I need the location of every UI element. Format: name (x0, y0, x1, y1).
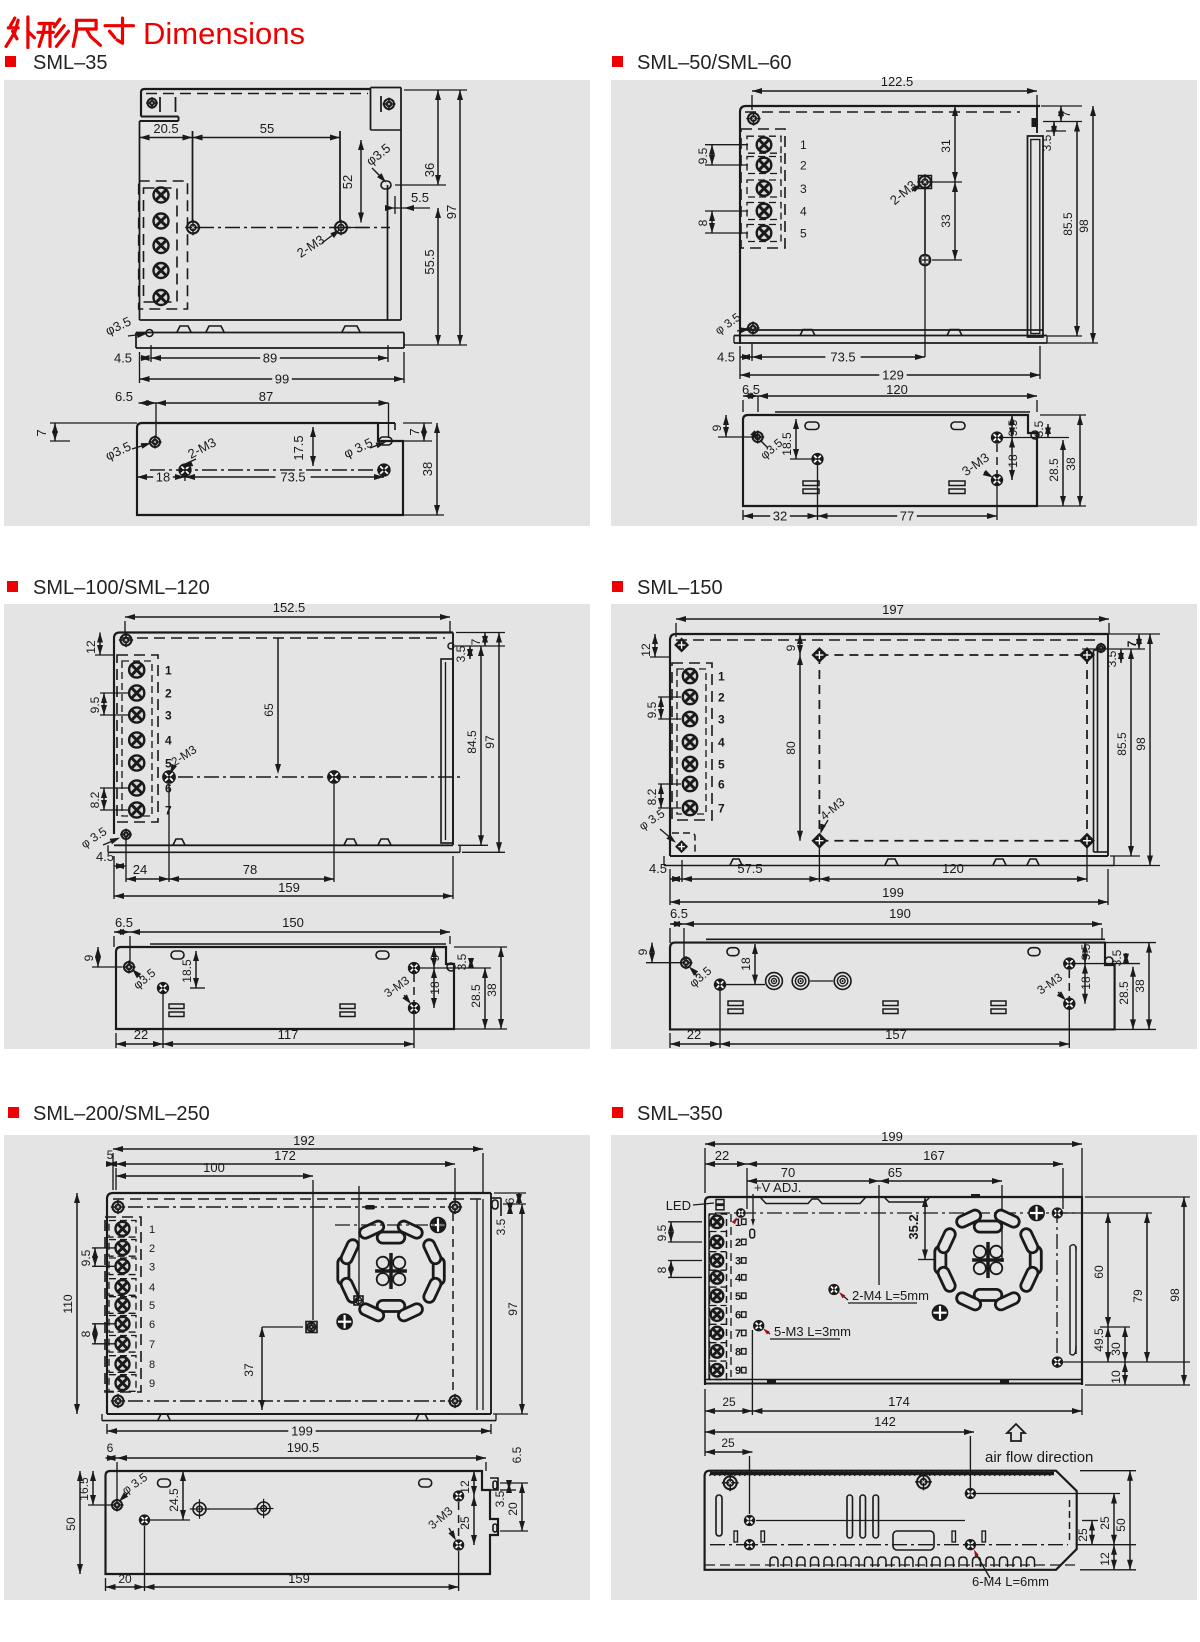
svg-text:33: 33 (939, 214, 953, 228)
svg-text:9: 9 (784, 644, 798, 651)
svg-text:SML–100/SML–120: SML–100/SML–120 (33, 577, 210, 599)
svg-text:3.5: 3.5 (1110, 949, 1124, 966)
svg-text:28.5: 28.5 (1047, 458, 1061, 482)
svg-text:6.5: 6.5 (670, 906, 688, 921)
svg-text:100: 100 (203, 1160, 225, 1175)
svg-text:5: 5 (149, 1300, 155, 1312)
svg-text:9.5: 9.5 (655, 1224, 669, 1241)
svg-text:6: 6 (107, 1441, 114, 1455)
svg-text:9: 9 (428, 954, 442, 961)
svg-text:1: 1 (149, 1224, 155, 1236)
svg-text:18: 18 (1079, 976, 1093, 990)
svg-text:17.5: 17.5 (291, 435, 306, 460)
svg-text:22: 22 (134, 1027, 148, 1042)
svg-text:197: 197 (882, 602, 904, 617)
svg-text:117: 117 (278, 1027, 299, 1042)
svg-text:7: 7 (469, 638, 483, 645)
svg-text:9: 9 (735, 1365, 741, 1377)
svg-text:9: 9 (710, 424, 724, 431)
svg-text:8.2: 8.2 (88, 791, 102, 808)
svg-text:6: 6 (149, 1319, 155, 1331)
svg-text:3.5: 3.5 (1032, 420, 1046, 437)
svg-text:55: 55 (260, 121, 274, 136)
svg-text:5: 5 (735, 1291, 741, 1303)
svg-text:25: 25 (722, 1395, 736, 1409)
svg-text:99: 99 (275, 371, 289, 386)
svg-text:18.5: 18.5 (180, 959, 194, 983)
svg-text:57.5: 57.5 (737, 861, 762, 876)
svg-text:3.5: 3.5 (1105, 650, 1119, 667)
svg-text:36: 36 (422, 163, 437, 177)
svg-text:12: 12 (639, 643, 653, 657)
svg-text:199: 199 (881, 1129, 903, 1144)
svg-text:1: 1 (165, 664, 172, 678)
svg-text:4.5: 4.5 (649, 861, 667, 876)
svg-text:2: 2 (800, 159, 807, 173)
svg-text:9: 9 (149, 1378, 155, 1390)
svg-text:85.5: 85.5 (1115, 732, 1129, 756)
svg-text:6: 6 (718, 778, 725, 792)
svg-text:28.5: 28.5 (1117, 981, 1131, 1005)
svg-text:2: 2 (165, 687, 172, 701)
svg-text:6.5: 6.5 (510, 1446, 524, 1463)
svg-text:6: 6 (735, 1310, 741, 1322)
svg-text:174: 174 (888, 1394, 910, 1409)
svg-text:157: 157 (885, 1027, 907, 1042)
svg-text:4.5: 4.5 (96, 849, 114, 864)
svg-text:3: 3 (149, 1261, 155, 1273)
svg-text:3: 3 (165, 709, 172, 723)
svg-text:6.5: 6.5 (742, 382, 760, 397)
svg-text:22: 22 (715, 1148, 729, 1163)
svg-text:31: 31 (939, 139, 953, 153)
svg-text:190: 190 (889, 906, 911, 921)
svg-text:85.5: 85.5 (1061, 212, 1075, 236)
svg-text:4: 4 (149, 1282, 155, 1294)
svg-text:2: 2 (735, 1237, 741, 1249)
svg-text:120: 120 (942, 861, 964, 876)
svg-text:98: 98 (1168, 1288, 1182, 1302)
svg-text:142: 142 (874, 1414, 896, 1429)
svg-text:4.5: 4.5 (114, 350, 132, 365)
svg-text:4: 4 (800, 205, 807, 219)
svg-text:24.5: 24.5 (167, 1488, 181, 1512)
svg-text:150: 150 (282, 915, 304, 930)
svg-text:9.5: 9.5 (79, 1249, 93, 1266)
svg-text:199: 199 (291, 1423, 313, 1438)
svg-text:8: 8 (149, 1359, 155, 1371)
svg-text:9: 9 (82, 954, 96, 961)
svg-text:+V ADJ.: +V ADJ. (754, 1180, 801, 1195)
svg-text:49.5: 49.5 (1092, 1328, 1106, 1352)
svg-text:77: 77 (900, 508, 914, 523)
svg-text:9.5: 9.5 (1006, 419, 1020, 436)
svg-text:25: 25 (1098, 1516, 1112, 1530)
svg-text:38: 38 (485, 983, 499, 997)
svg-text:7: 7 (1059, 110, 1073, 117)
svg-text:18: 18 (739, 957, 753, 971)
svg-text:50: 50 (64, 1517, 78, 1531)
svg-text:52: 52 (340, 175, 355, 189)
svg-text:18: 18 (156, 469, 170, 484)
svg-text:25: 25 (721, 1436, 735, 1450)
svg-text:30: 30 (1109, 1342, 1123, 1356)
svg-text:24: 24 (133, 862, 147, 877)
svg-text:20: 20 (506, 1502, 520, 1516)
svg-text:122.5: 122.5 (881, 74, 914, 89)
svg-text:7: 7 (735, 1328, 741, 1340)
svg-text:18: 18 (428, 981, 442, 995)
svg-text:9.5: 9.5 (696, 147, 710, 164)
svg-text:18: 18 (1006, 454, 1020, 468)
svg-text:5: 5 (107, 1148, 114, 1162)
svg-text:9: 9 (636, 948, 650, 955)
svg-text:12: 12 (84, 640, 98, 654)
svg-text:2-M4 L=5mm: 2-M4 L=5mm (852, 1288, 929, 1303)
svg-text:SML–35: SML–35 (33, 52, 108, 74)
svg-text:80: 80 (784, 741, 798, 755)
svg-text:65: 65 (888, 1165, 902, 1180)
svg-text:78: 78 (243, 862, 257, 877)
svg-text:97: 97 (483, 735, 497, 749)
svg-text:38: 38 (1064, 457, 1078, 471)
svg-text:98: 98 (1077, 219, 1091, 233)
svg-text:LED: LED (666, 1198, 691, 1213)
svg-text:9.5: 9.5 (1079, 943, 1093, 960)
svg-text:8: 8 (655, 1266, 669, 1273)
svg-text:2: 2 (718, 691, 725, 705)
svg-text:159: 159 (288, 1571, 310, 1586)
svg-text:50: 50 (1114, 1518, 1128, 1532)
svg-text:28.5: 28.5 (469, 984, 483, 1008)
svg-text:4.5: 4.5 (717, 349, 735, 364)
svg-text:4: 4 (165, 734, 172, 748)
svg-text:35.2: 35.2 (906, 1214, 921, 1239)
svg-text:73.5: 73.5 (830, 349, 855, 364)
svg-text:9.5: 9.5 (88, 696, 102, 713)
svg-text:7: 7 (149, 1339, 155, 1351)
svg-text:22: 22 (687, 1027, 701, 1042)
svg-text:60: 60 (1092, 1265, 1106, 1279)
svg-text:38: 38 (420, 462, 435, 476)
svg-text:152.5: 152.5 (273, 600, 306, 615)
svg-text:65: 65 (262, 703, 276, 717)
svg-text:Dimensions: Dimensions (143, 16, 305, 51)
svg-text:84.5: 84.5 (465, 730, 479, 754)
svg-text:79: 79 (1131, 1289, 1145, 1303)
svg-text:120: 120 (886, 382, 908, 397)
svg-text:8: 8 (79, 1330, 93, 1337)
svg-text:3: 3 (718, 713, 725, 727)
svg-text:6.5: 6.5 (115, 915, 133, 930)
svg-text:3.5: 3.5 (493, 1490, 507, 1507)
svg-text:8: 8 (735, 1346, 741, 1358)
svg-text:5-M3 L=3mm: 5-M3 L=3mm (774, 1324, 851, 1339)
svg-text:2: 2 (149, 1243, 155, 1255)
svg-text:SML–150: SML–150 (637, 577, 723, 599)
svg-text:87: 87 (259, 389, 273, 404)
svg-text:air flow direction: air flow direction (985, 1449, 1093, 1466)
svg-text:192: 192 (293, 1133, 315, 1148)
svg-text:3: 3 (735, 1256, 741, 1268)
svg-text:SML–50/SML–60: SML–50/SML–60 (637, 52, 792, 74)
svg-text:SML–350: SML–350 (637, 1103, 723, 1125)
svg-text:5: 5 (718, 758, 725, 772)
svg-text:110: 110 (61, 1294, 75, 1313)
svg-text:3: 3 (800, 182, 807, 196)
svg-text:172: 172 (274, 1148, 296, 1163)
svg-text:199: 199 (882, 885, 904, 900)
svg-text:3.5: 3.5 (454, 645, 468, 662)
svg-text:3.5: 3.5 (1040, 134, 1054, 151)
svg-text:7: 7 (407, 428, 422, 435)
svg-text:9.5: 9.5 (645, 701, 659, 718)
svg-text:12: 12 (1098, 1552, 1112, 1566)
svg-text:20.5: 20.5 (153, 121, 178, 136)
svg-text:6.5: 6.5 (115, 389, 133, 404)
svg-text:167: 167 (923, 1148, 945, 1163)
svg-text:7: 7 (34, 429, 49, 436)
svg-text:1: 1 (800, 138, 807, 152)
svg-text:32: 32 (773, 508, 787, 523)
svg-text:97: 97 (444, 205, 459, 219)
svg-text:37: 37 (242, 1363, 256, 1377)
svg-text:70: 70 (781, 1165, 795, 1180)
svg-text:4: 4 (718, 736, 725, 750)
svg-text:10: 10 (1109, 1370, 1123, 1384)
svg-text:3.5: 3.5 (494, 1218, 508, 1235)
svg-text:3.5: 3.5 (455, 953, 469, 970)
svg-text:129: 129 (882, 367, 904, 382)
svg-text:5.5: 5.5 (411, 190, 429, 205)
svg-text:190.5: 190.5 (287, 1440, 320, 1455)
svg-text:SML–200/SML–250: SML–200/SML–250 (33, 1103, 210, 1125)
svg-text:38: 38 (1133, 979, 1147, 993)
svg-text:73.5: 73.5 (280, 469, 305, 484)
svg-text:97: 97 (506, 1302, 520, 1316)
svg-text:7: 7 (1125, 640, 1139, 647)
svg-text:25: 25 (1076, 1528, 1090, 1542)
svg-text:8.2: 8.2 (645, 788, 659, 805)
svg-text:25: 25 (458, 1516, 472, 1530)
svg-text:7: 7 (718, 802, 725, 816)
svg-text:55.5: 55.5 (422, 249, 437, 274)
svg-text:20: 20 (118, 1572, 132, 1586)
svg-text:159: 159 (278, 880, 300, 895)
svg-text:5: 5 (800, 227, 807, 241)
svg-text:89: 89 (263, 350, 277, 365)
svg-text:1: 1 (718, 670, 725, 684)
svg-text:98: 98 (1134, 737, 1148, 751)
svg-text:12: 12 (458, 1480, 472, 1494)
svg-text:8: 8 (696, 219, 710, 226)
svg-text:6-M4 L=6mm: 6-M4 L=6mm (972, 1574, 1049, 1589)
